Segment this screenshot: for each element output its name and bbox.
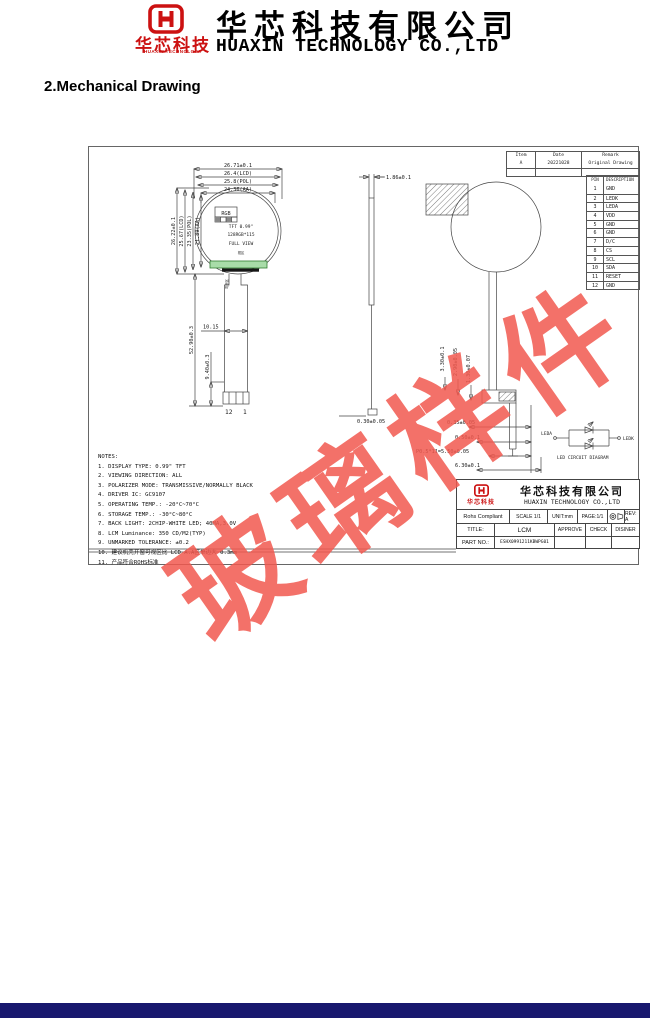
- notes-block: NOTES: 1. DISPLAY TYPE: 0.99" TFT2. VIEW…: [98, 453, 358, 568]
- title-block-logo: 华芯科技: [457, 480, 505, 509]
- note-item: 2. VIEWING DIRECTION: ALL: [98, 472, 358, 481]
- dim-label: 0.35±0.05: [447, 420, 475, 426]
- revision-header-row: Item Date Remark: [507, 152, 639, 160]
- designer-value-cell: [611, 537, 639, 548]
- pin-row: 7D/C: [587, 237, 639, 246]
- pin-row: 5GND: [587, 220, 639, 229]
- pin-row: 12GND: [587, 281, 639, 290]
- pin-row: 3LEDA: [587, 202, 639, 211]
- dim-label: 0.50±0.1: [455, 435, 480, 441]
- dim-label: 52.90±0.3: [189, 326, 195, 354]
- pin-row: 1GND: [587, 185, 639, 194]
- screen-label: FULL VIEW: [229, 241, 254, 247]
- revision-table: Item Date Remark A 20221028 Original Dra…: [506, 151, 640, 177]
- led-cathode-label: LEDK: [623, 436, 634, 442]
- revision-header: Remark: [581, 152, 639, 160]
- title-block-logo-text: 华芯科技: [467, 497, 495, 506]
- approve-value-cell: [554, 537, 585, 548]
- page-label: PAGE:1/1: [577, 510, 607, 523]
- led-anode-label: LEDA: [541, 431, 552, 437]
- title-block-company: 华芯科技有限公司 HUAXIN TECHNOLOGY CO.,LTD: [505, 480, 639, 509]
- pin-header: PIN: [587, 176, 603, 185]
- pin-row: 10SDA: [587, 263, 639, 272]
- partno-label: PART NO.:: [457, 537, 494, 548]
- pin-row: 2LEDK: [587, 194, 639, 203]
- dim-label: 26.71±0.1: [224, 163, 252, 169]
- note-item: 9. UNMARKED TOLERANCE: ±0.2: [98, 539, 358, 548]
- led-circuit-caption: LED CIRCUIT DIAGRAM: [557, 455, 609, 461]
- pin-row: 6GND: [587, 228, 639, 237]
- rgb-label: RGB: [221, 211, 230, 217]
- note-item: 10. 建议机壳开窗可视区比 LCD A.A区单边大 0.3mm: [98, 549, 358, 558]
- note-item: 8. LCM Luminance: 350 CD/M2(TYP): [98, 530, 358, 539]
- dim-label: 1.86±0.1: [386, 175, 411, 181]
- dim-label: 23.35(POL): [187, 215, 193, 246]
- footer-bar: [0, 1003, 650, 1018]
- dim-label: 25.8(POL): [224, 179, 252, 185]
- check-value-cell: [585, 537, 611, 548]
- revision-header: Item: [507, 152, 535, 160]
- dim-label: 3.30±0.1: [440, 347, 446, 372]
- pin-row: 9SCL: [587, 255, 639, 264]
- note-item: 11. 产品符合ROHS标准: [98, 559, 358, 568]
- dim-label: 6.30±0.1: [455, 463, 480, 469]
- dim-label: 9.40±0.3: [205, 355, 211, 380]
- designer-label: DISINER: [611, 524, 639, 536]
- dim-label: 26.22±0.1: [171, 217, 177, 245]
- screen-label: TFT 0.99": [229, 224, 253, 230]
- pin-row: 8CS: [587, 246, 639, 255]
- pin-number-label: 12: [225, 409, 233, 416]
- dim-label: 0.30±0.05: [357, 419, 385, 425]
- screen-label: 128RGB*115: [227, 232, 254, 238]
- section-title: 2.Mechanical Drawing: [44, 78, 201, 95]
- dim-label: 21.89(AA): [195, 217, 201, 245]
- title-block-company-en: HUAXIN TECHNOLOGY CO.,LTD: [524, 499, 620, 506]
- drawing-frame: RGB TFT 0.99" 128RGB*115 FULL VIEW 视区 26…: [88, 146, 639, 565]
- note-item: 1. DISPLAY TYPE: 0.99" TFT: [98, 463, 358, 472]
- huaxin-logo-icon: [148, 4, 184, 34]
- pin-number-label: 1: [243, 409, 247, 416]
- pin-description-header: DESCRIPTION: [603, 176, 639, 185]
- document-page: 华芯科技 HUAXIN TECHNOLOGY 华芯科技有限公司 HUAXIN T…: [0, 0, 650, 1034]
- approve-label: APPROVE: [554, 524, 585, 536]
- pin-row: 4VDD: [587, 211, 639, 220]
- huaxin-logo-icon: [474, 484, 489, 497]
- note-item: 5. OPERATING TEMP.: -20°C~70°C: [98, 501, 358, 510]
- dim-label: 24.36(AA): [224, 187, 252, 193]
- note-item: 7. BACK LIGHT: 2CHIP-WHITE LED; 40MA,3.0…: [98, 520, 358, 529]
- logo-text-en: HUAXIN TECHNOLOGY: [131, 49, 215, 54]
- rohs-label: Rohs Compliant: [457, 510, 509, 523]
- pin-table-header: PIN DESCRIPTION: [587, 176, 639, 185]
- scale-label: SCALE 1/1: [509, 510, 547, 523]
- check-label: CHECK: [585, 524, 611, 536]
- title-label: TITLE:: [457, 524, 494, 536]
- pin-row: 11RESET: [587, 272, 639, 281]
- partno-value: ESHX0991211KBWPG01: [494, 537, 554, 548]
- projection-symbol-icon: [607, 510, 624, 523]
- rev-label: REV: A: [624, 510, 639, 523]
- fpc-note-label: 弯折区: [224, 278, 229, 289]
- dim-label: 2.90±0.05: [453, 348, 459, 376]
- notes-title: NOTES:: [98, 453, 358, 462]
- title-block: 华芯科技 华芯科技有限公司 HUAXIN TECHNOLOGY CO.,LTD …: [456, 479, 640, 549]
- dim-label: 26.4(LCD): [224, 171, 252, 177]
- screen-label: 视区: [238, 250, 245, 255]
- revision-header: Date: [535, 152, 581, 160]
- note-item: 3. POLARIZER MODE: TRANSMISSIVE/NORMALLY…: [98, 482, 358, 491]
- title-block-company-cn: 华芯科技有限公司: [520, 483, 624, 499]
- revision-row: A 20221028 Original Drawing: [507, 160, 639, 168]
- title-value: LCM: [494, 524, 554, 536]
- note-item: 4. DRIVER IC: GC9107: [98, 491, 358, 500]
- dim-label: 1.30±0.07: [466, 355, 472, 383]
- dim-label: 10.15: [203, 325, 219, 331]
- dim-label: P0.5*11=5.50±0.05: [416, 449, 469, 455]
- note-item: 6. STORAGE TEMP.: -30°C~80°C: [98, 511, 358, 520]
- pin-table: PIN DESCRIPTION 1GND 2LEDK 3LEDA 4VDD 5G…: [586, 175, 640, 290]
- company-name-en: HUAXIN TECHNOLOGY CO.,LTD: [216, 37, 499, 57]
- dim-label: 25.67(LCD): [179, 215, 185, 246]
- unit-label: UNIT:mm: [547, 510, 577, 523]
